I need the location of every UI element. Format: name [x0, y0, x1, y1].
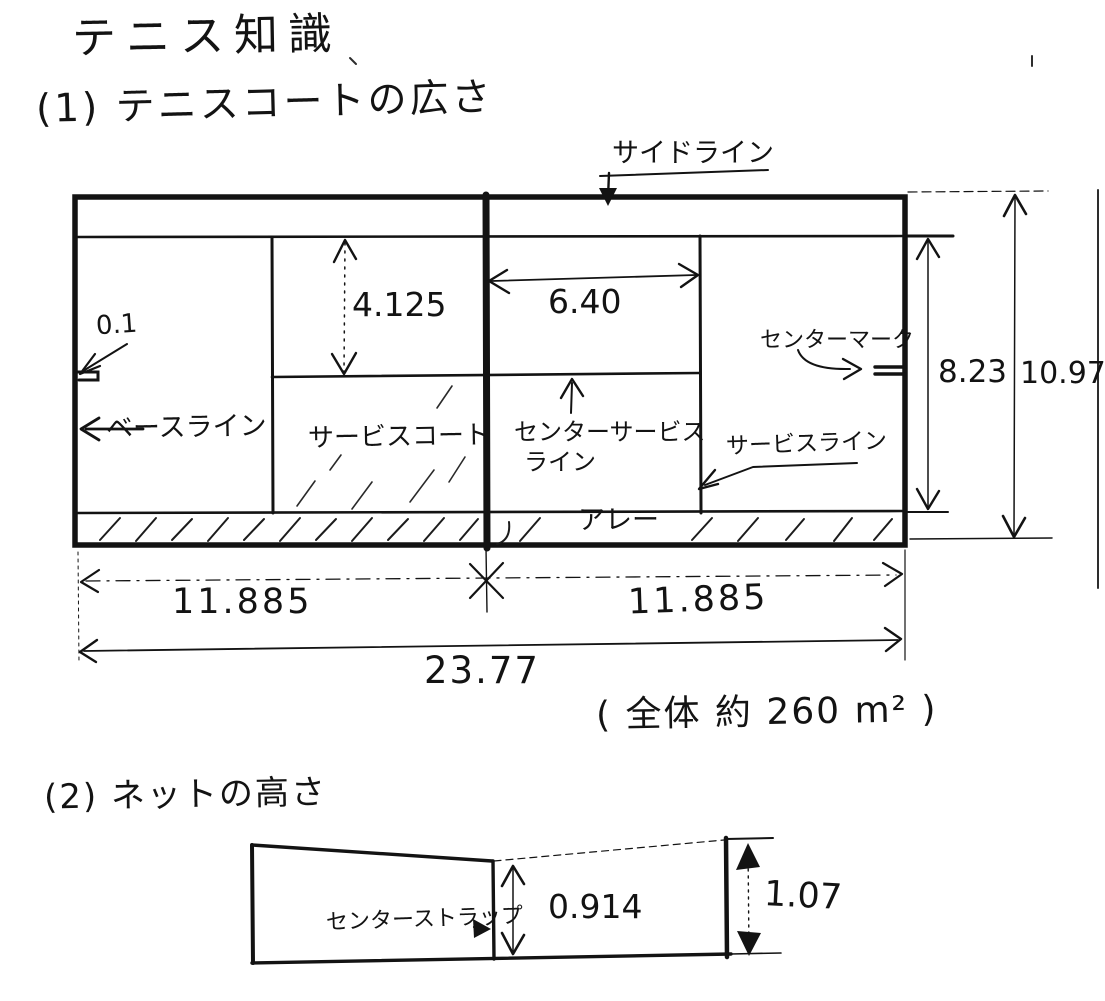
- service-line-left: [272, 237, 273, 513]
- label-sideline: サイドライン: [612, 140, 774, 168]
- dim-doubles-width: 10.97: [1020, 358, 1105, 390]
- dim-singles-width: 8.23: [938, 356, 1007, 389]
- dim-total-length: 23.77: [424, 652, 540, 691]
- court-outline: [75, 195, 905, 548]
- dim-net-post-height: 1.07: [763, 876, 843, 917]
- label-alley: アレー: [578, 507, 659, 535]
- label-center-mark: センターマーク: [760, 329, 914, 352]
- net-bottom-edge: [252, 954, 731, 963]
- net-right-post: [726, 838, 727, 957]
- sideline-underline: [600, 170, 768, 176]
- scanned-notebook-page: テニス知識 (1) テニスコートの広さ サイドライン 4.125 6.40 0.…: [0, 0, 1105, 1001]
- dim-service-line-distance: 6.40: [548, 285, 621, 320]
- net-left-post: [252, 845, 253, 963]
- dim-service-box-halfwidth: 4.125: [352, 288, 446, 323]
- dim-half-length-left: 11.885: [172, 584, 312, 621]
- section2-heading: (2) ネットの高さ: [44, 776, 328, 817]
- label-baseline: ベースライン: [106, 413, 267, 444]
- tennis-diagram-linework: [0, 0, 1105, 1001]
- page-title: テニス知識: [72, 12, 343, 63]
- dim-center-mark-length: 0.1: [95, 311, 138, 341]
- alley-hatching: [100, 518, 892, 544]
- center-mark-left-tick: [75, 372, 98, 380]
- net-diagram-linework: [252, 838, 781, 963]
- dim-net-center-height: 0.914: [548, 890, 642, 925]
- singles-sideline-top: [78, 236, 902, 237]
- net-line: [486, 195, 487, 548]
- scan-artifacts: [350, 56, 1098, 588]
- label-center-service-line-1: センターサービス: [514, 420, 706, 445]
- dim-half-length-right: 11.885: [627, 580, 769, 622]
- service-line-right: [700, 236, 701, 513]
- label-center-service-line-2: ライン: [524, 450, 596, 475]
- net-top-left-edge: [252, 845, 492, 861]
- label-service-line: サービスライン: [726, 429, 888, 459]
- label-service-court: サービスコート: [308, 422, 490, 452]
- total-area-note: ( 全体 約 260 m² ): [596, 691, 938, 735]
- net-top-right-edge: [494, 840, 724, 861]
